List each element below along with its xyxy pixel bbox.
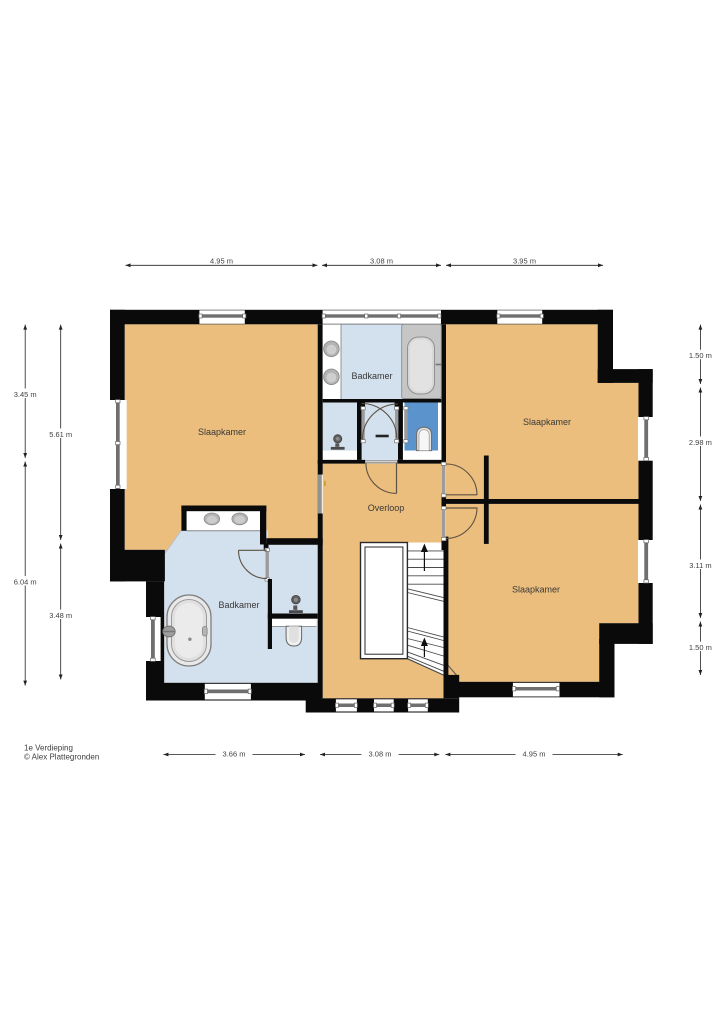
svg-text:Slaapkamer: Slaapkamer [198, 427, 246, 437]
svg-text:3.08 m: 3.08 m [369, 750, 392, 759]
svg-text:Slaapkamer: Slaapkamer [512, 585, 560, 595]
svg-text:4.95 m: 4.95 m [523, 750, 546, 759]
svg-text:Slaapkamer: Slaapkamer [523, 417, 571, 427]
svg-text:3.48 m: 3.48 m [49, 611, 72, 620]
svg-text:Badkamer: Badkamer [218, 600, 259, 610]
svg-text:1.50 m: 1.50 m [689, 351, 712, 360]
svg-text:Badkamer: Badkamer [351, 371, 392, 381]
svg-text:5.61 m: 5.61 m [49, 430, 72, 439]
svg-text:1e Verdieping: 1e Verdieping [24, 744, 73, 753]
svg-text:1.50 m: 1.50 m [689, 643, 712, 652]
svg-text:3.66 m: 3.66 m [223, 750, 246, 759]
svg-text:3.11 m: 3.11 m [689, 561, 711, 570]
svg-text:© Alex Plattegronden: © Alex Plattegronden [24, 753, 99, 762]
svg-text:6.04 m: 6.04 m [14, 577, 37, 586]
svg-text:3.45 m: 3.45 m [14, 390, 37, 399]
svg-text:4.95 m: 4.95 m [210, 256, 233, 265]
svg-text:3.08 m: 3.08 m [370, 256, 393, 265]
svg-text:2.98 m: 2.98 m [689, 438, 712, 447]
svg-text:3.95 m: 3.95 m [513, 256, 536, 265]
svg-text:Overloop: Overloop [368, 503, 405, 513]
